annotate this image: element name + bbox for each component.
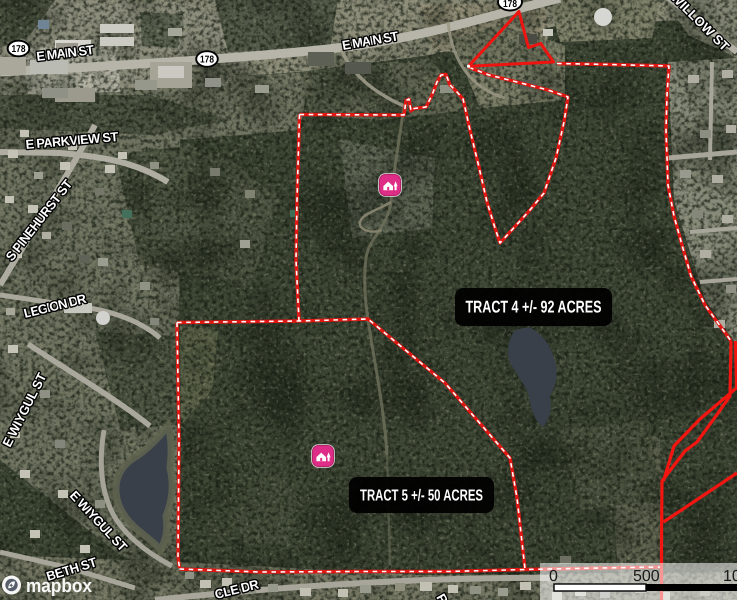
svg-text:500: 500 (633, 568, 660, 585)
svg-text:10: 10 (723, 568, 737, 585)
svg-text:0: 0 (549, 568, 558, 585)
svg-text:178: 178 (200, 55, 214, 66)
svg-text:178: 178 (503, 0, 517, 10)
svg-text:TRACT 4 +/- 92 ACRES: TRACT 4 +/- 92 ACRES (466, 298, 602, 317)
svg-text:178: 178 (12, 44, 26, 55)
svg-text:mapbox: mapbox (26, 576, 92, 597)
svg-text:TRACT 5 +/- 50 ACRES: TRACT 5 +/- 50 ACRES (360, 488, 483, 505)
